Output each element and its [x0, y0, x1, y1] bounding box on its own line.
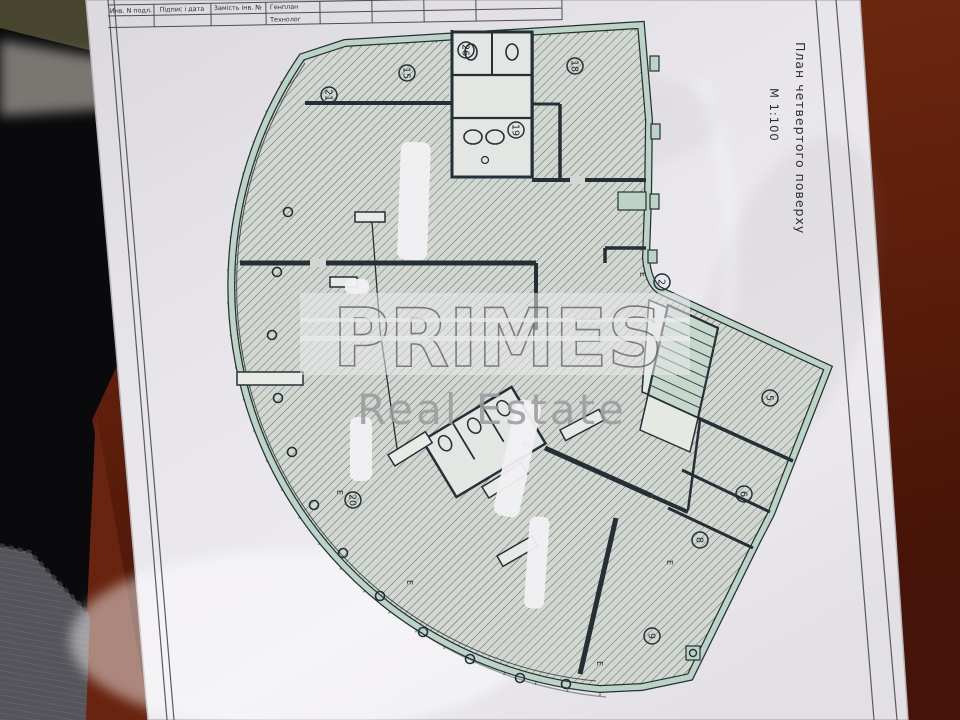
svg-text:21: 21: [323, 89, 334, 101]
svg-text:2: 2: [656, 279, 667, 285]
svg-text:8: 8: [694, 537, 705, 543]
svg-text:9: 9: [646, 633, 657, 639]
sheet-title-vertical: План четвертого поверху: [793, 42, 808, 234]
photo-of-floor-plan-sheet: Инв. N подл. Підпис і дата Замість інв. …: [0, 0, 960, 720]
svg-text:19: 19: [510, 124, 521, 136]
e-marker: Е: [405, 580, 414, 585]
titleblock-cell-replinv: Замість інв. №: [214, 3, 262, 12]
titleblock-cell-technolog: Технолог: [269, 15, 302, 24]
floor-plan-photo: Инв. N подл. Підпис і дата Замість інв. …: [0, 0, 960, 720]
e-marker: Е: [335, 490, 344, 495]
sheet-scale: М 1:100: [767, 88, 781, 142]
svg-text:5: 5: [764, 395, 775, 401]
titleblock-cell-signdate: Підпис і дата: [160, 5, 205, 14]
svg-text:20: 20: [347, 494, 358, 506]
svg-text:26: 26: [460, 44, 471, 56]
svg-text:18: 18: [569, 60, 580, 72]
titleblock-cell-genplan: Генплан: [270, 3, 299, 11]
svg-text:15: 15: [401, 67, 412, 79]
e-marker: Е: [595, 661, 604, 666]
e-marker: Е: [638, 272, 647, 277]
e-marker: Е: [665, 560, 674, 565]
svg-text:6: 6: [738, 491, 749, 497]
titleblock-cell-inv: Инв. N подл.: [110, 6, 152, 15]
